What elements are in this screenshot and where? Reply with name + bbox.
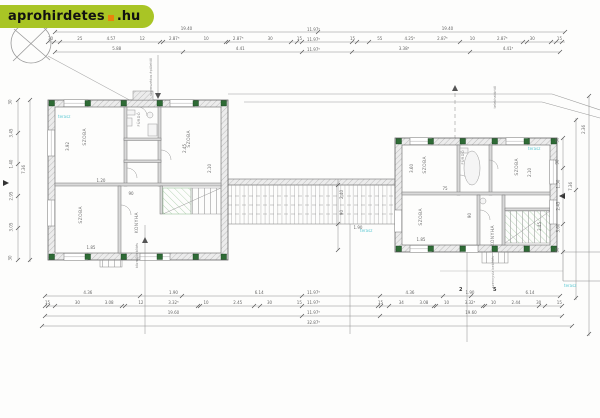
dim-value: 90 <box>556 159 560 164</box>
watermark-logo: aprohirdetes .hu <box>0 5 154 28</box>
dim-value: 6.14 <box>500 291 560 295</box>
dim-bottom-total-left: 19.60 <box>45 311 302 315</box>
dim-value: 1.40 <box>9 160 13 169</box>
dim-top-stack-3: 11.97⁵ <box>300 48 320 52</box>
room-label-left-1: SZOBA <box>84 128 89 146</box>
note-below-left: közműbekötés <box>136 243 140 268</box>
dim-value: 30 <box>9 99 13 104</box>
dim-top-sub-right: 3.38⁵4.41⁵ <box>352 47 560 51</box>
connecting-corridor <box>228 179 395 252</box>
dim-value: 30 <box>48 37 53 41</box>
room-label-left-3: SZOBA <box>80 206 85 224</box>
dim-int-r5: 90 <box>468 213 472 218</box>
dim-top-stack-2: 11.97⁵ <box>300 38 320 42</box>
dim-value: 15 <box>557 37 562 41</box>
room-label-right-1: SZOBA <box>424 156 429 174</box>
logo-tld-text: .hu <box>117 9 140 24</box>
dim-right-outer: 2.36 <box>582 125 586 134</box>
room-label-right-3: SZOBA <box>420 208 425 226</box>
dim-value: 10 <box>444 301 449 305</box>
dim-value: 30 <box>267 301 272 305</box>
dim-value: 30 <box>530 37 535 41</box>
terrace-label-4: terasz <box>564 284 576 288</box>
dim-int-l6: 2.10 <box>208 164 212 173</box>
dim-bottom-stack-3: 11.97⁵ <box>300 311 320 315</box>
dim-value: 6.14 <box>216 291 302 295</box>
dim-value: 10 <box>203 301 208 305</box>
dim-value: 2.87⁵ <box>497 37 508 41</box>
dim-value: 3.60 <box>556 224 560 233</box>
terrace-label-2: terasz <box>528 147 540 151</box>
dim-value: 3.45 <box>9 129 13 138</box>
dim-bottom-segments-right: 15343.08103.32⁵102.443015 <box>378 301 562 305</box>
dim-int-r2: 75 <box>440 187 450 191</box>
dim-value: 2.87⁵ <box>437 37 448 41</box>
dim-left-chain: 303.451.402.953.0530 <box>6 100 16 260</box>
dim-value: 4.41 <box>179 47 303 51</box>
dim-value: 15 <box>45 301 50 305</box>
dim-value: 12 <box>140 37 145 41</box>
logo-dot-icon <box>108 15 114 21</box>
section-marker-2: 2 <box>459 288 462 293</box>
dim-value: 12 <box>138 301 143 305</box>
dim-value: 3.05 <box>9 222 13 231</box>
room-label-left-5: FÜRDŐ <box>138 112 142 126</box>
floorplan-page: aprohirdetes .hu 19.40 19.40 30254.57122… <box>0 0 600 418</box>
note-right-top: telekhatártól <box>494 86 498 108</box>
dim-value: 4.41⁵ <box>456 47 560 51</box>
dim-top-segments-left: 30254.57122.87⁵102.87⁵3015 <box>48 37 302 41</box>
dim-value: 4.57 <box>107 37 116 41</box>
dim-top-segments-right: 15554.25⁵2.87⁵102.87⁵3015 <box>350 37 562 41</box>
room-label-right-5: FÜRDŐ <box>462 150 466 164</box>
north-compass-icon <box>11 23 135 103</box>
dim-value: 1.90 <box>440 291 500 295</box>
dim-int-l5: 1.85 <box>84 246 98 250</box>
dim-value: 5.88 <box>55 47 179 51</box>
room-label-right-2: SZOBA <box>516 158 521 176</box>
logo-brand-text: aprohirdetes <box>8 9 105 24</box>
note-below-right: szennyvíz bekötés <box>492 256 496 288</box>
dim-corridor-1: 2.40 <box>340 190 344 199</box>
dim-value: 25 <box>77 37 82 41</box>
dim-top-sub-left: 5.884.41 <box>55 47 302 51</box>
dim-value: 4.36 <box>45 291 131 295</box>
dim-value: 30 <box>268 37 273 41</box>
dim-value: 30 <box>536 301 541 305</box>
dim-left-total: 7.36 <box>22 165 26 174</box>
dim-value: 30 <box>75 301 80 305</box>
dim-value: 2.45 <box>556 202 560 211</box>
dim-value: 3.08 <box>105 301 114 305</box>
dim-value: 15 <box>350 37 355 41</box>
dim-value: 1.50 <box>556 180 560 189</box>
dim-right-chain: 30901.502.453.6030 <box>553 138 563 252</box>
dim-bottom-stack-4: 32.87⁵ <box>300 321 320 325</box>
dim-int-r3: 2.10 <box>528 168 532 177</box>
room-label-right-4: KONYHA <box>492 225 497 246</box>
dim-bottom-stack-2: 11.97⁵ <box>300 301 320 305</box>
terrace-label-3: terasz <box>360 229 372 233</box>
dim-value: 2.87⁵ <box>169 37 180 41</box>
dim-value: 15 <box>557 301 562 305</box>
dim-value: 4.25⁵ <box>404 37 415 41</box>
dim-value: 15 <box>378 301 383 305</box>
dim-value: 3.32⁵ <box>465 301 476 305</box>
dim-bottom-total-right: 19.60 <box>380 311 562 315</box>
dim-value: 2.45 <box>233 301 242 305</box>
dim-value: 10 <box>491 301 496 305</box>
dim-value: 3.32⁵ <box>168 301 179 305</box>
dim-value: 30 <box>9 255 13 260</box>
dim-value: 2.87⁵ <box>233 37 244 41</box>
dim-value: 2.44 <box>512 301 521 305</box>
dim-bottom-openings-left: 4.361.906.14 <box>45 291 302 295</box>
dim-value: 3.08 <box>419 301 428 305</box>
dim-value: 30 <box>556 247 560 252</box>
dim-corridor-2: 90 <box>340 210 344 215</box>
dim-bottom-openings-right: 4.361.906.14 <box>380 291 560 295</box>
dim-int-r6: 2.45 <box>538 222 542 231</box>
dim-bottom-stack-1: 11.97⁵ <box>300 291 320 295</box>
dim-top-stack-1: 11.97⁵ <box>300 28 320 32</box>
dim-right-total: 7.36 <box>569 182 573 191</box>
dim-int-l4: 90 <box>126 192 136 196</box>
floorplan-drawing <box>0 0 600 418</box>
dim-top-total-right: 19.40 <box>330 27 565 31</box>
right-building <box>395 138 557 263</box>
terrace-label-1: terasz <box>58 115 70 119</box>
dim-value: 10 <box>204 37 209 41</box>
section-marker-5: 5 <box>493 288 496 293</box>
dim-bottom-segments-left: 15303.08123.32⁵102.453015 <box>45 301 302 305</box>
room-label-left-2: SZOBA <box>188 130 193 148</box>
dim-value: 34 <box>399 301 404 305</box>
dim-value: 3.38⁵ <box>352 47 456 51</box>
dim-value: 1.90 <box>131 291 217 295</box>
dim-int-r1: 3.60 <box>410 164 414 173</box>
note-mid-top: szomszédos épülettől <box>150 58 154 96</box>
dim-int-l1: 3.92 <box>66 142 70 151</box>
dim-int-l2: 1.20 <box>94 179 108 183</box>
dim-value: 30 <box>556 137 560 142</box>
room-label-left-4: KONYHA <box>136 212 141 233</box>
dim-value: 10 <box>470 37 475 41</box>
dim-value: 2.95 <box>9 191 13 200</box>
dim-value: 55 <box>377 37 382 41</box>
dim-value: 4.36 <box>380 291 440 295</box>
dim-int-r4: 1.85 <box>414 238 428 242</box>
